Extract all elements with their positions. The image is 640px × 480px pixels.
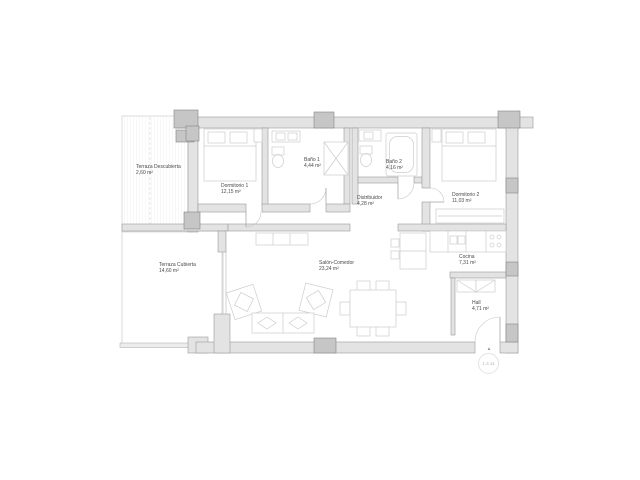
door-arc-entrance [475, 317, 500, 342]
room-label-dormitorio-2: Dormitorio 2 11,03 m² [452, 192, 479, 204]
glass-sliding-door [223, 252, 226, 314]
room-area: 12,15 m² [221, 189, 248, 195]
wall-glass-jamb-top [218, 231, 226, 252]
wall-bano2-bottom-b [414, 177, 422, 183]
entrance-ref-badge: 1.3.11 [478, 353, 499, 374]
toilet-tank [272, 147, 284, 155]
pillar [498, 111, 520, 128]
sink-counter [359, 130, 381, 141]
door-arc-bano2 [398, 183, 414, 199]
wall-dormitorio1-bottom-c [326, 204, 350, 212]
room-label-dormitorio-1: Dormitorio 1 12,15 m² [221, 183, 248, 195]
nightstand [432, 129, 441, 142]
room-area: 7,31 m² [459, 260, 476, 266]
nightstand [254, 129, 262, 142]
wall-bath-divider-right [352, 128, 358, 204]
kitchen-counter [430, 231, 506, 252]
furniture-dormitorio-2 [432, 129, 504, 223]
stool [391, 251, 399, 259]
furniture-dormitorio-1 [204, 129, 262, 181]
wall-dormitorio1-right [262, 128, 268, 206]
wall-hall-top [450, 272, 506, 278]
pillow [446, 132, 463, 143]
wall-dormitorio1-bottom-a [198, 204, 246, 212]
floor-plan: Terraza Descubierta 2,60 m² Dormitorio 1… [0, 0, 640, 480]
terrace-railing [120, 343, 192, 348]
room-area: 4,44 m² [304, 163, 321, 169]
terraza-cubierta-floor [120, 231, 222, 353]
room-area: 4,16 m² [386, 165, 403, 171]
room-area: 2,60 m² [136, 170, 181, 176]
wall-bano2-bottom-a [358, 177, 398, 183]
wall-top [176, 117, 533, 128]
pillow [208, 132, 225, 143]
wall-glass-jamb-bottom [214, 314, 230, 353]
room-label-terraza-descubierta: Terraza Descubierta 2,60 m² [136, 164, 181, 176]
pillow [230, 132, 247, 143]
chair [396, 302, 406, 315]
chair [357, 326, 370, 336]
wall-right [506, 117, 518, 353]
pillar [186, 126, 199, 141]
room-area: 4,28 m² [357, 201, 382, 207]
entrance-arrow-icon: ▲ [478, 346, 500, 351]
toilet-bowl [361, 154, 372, 167]
dining-set [340, 281, 406, 336]
room-label-terraza-cubierta: Terraza Cubierta 14,60 m² [159, 262, 196, 274]
pillar [314, 112, 334, 128]
chair [340, 302, 350, 315]
furniture-hall [457, 280, 495, 292]
room-label-hall: Hall 4,71 m² [472, 300, 489, 312]
chair [376, 281, 389, 291]
room-label-bano-1: Baño 1 4,44 m² [304, 157, 321, 169]
wall-dormitorio2-left-top [422, 128, 430, 188]
armchair [299, 283, 333, 317]
room-label-distribuidor: Distribuidor 4,28 m² [357, 195, 382, 207]
pillar [506, 324, 518, 342]
pillar [314, 338, 336, 353]
pillow [468, 132, 485, 143]
pillar [506, 178, 518, 193]
wall-bottom-right [500, 342, 518, 353]
sofa [252, 313, 314, 333]
stool [391, 239, 399, 247]
room-area: 4,71 m² [472, 306, 489, 312]
entrance-marker: ▲ 1.3.11 [478, 346, 500, 374]
toilet-tank [360, 146, 372, 154]
door-arc-dormitorio2 [430, 188, 444, 202]
room-label-cocina: Cocina 7,31 m² [459, 254, 476, 266]
wall-dormitorio2-bottom [398, 224, 506, 231]
room-area: 11,03 m² [452, 198, 479, 204]
door-arc-bano1 [310, 188, 326, 204]
wall-terraza-cubierta-top [122, 224, 228, 231]
wall-hall-left [451, 278, 455, 335]
room-area: 23,24 m² [319, 266, 354, 272]
floor-plan-drawing [0, 0, 640, 480]
furniture-salon-comedor [226, 233, 406, 336]
pillar [184, 212, 200, 229]
room-area: 14,60 m² [159, 268, 196, 274]
pillar [174, 110, 198, 128]
wall-dormitorio1-bottom-b [262, 204, 310, 212]
sideboard [256, 233, 308, 245]
pillar [506, 262, 518, 276]
toilet-bowl [273, 155, 284, 168]
chair [357, 281, 370, 291]
dining-table [350, 290, 396, 327]
room-label-salon-comedor: Salón-Comedor 23,24 m² [319, 260, 354, 272]
chair [376, 326, 389, 336]
room-label-bano-2: Baño 2 4,16 m² [386, 159, 403, 171]
furniture-cocina [391, 231, 506, 269]
entrance-ref-label: 1.3.11 [482, 361, 494, 366]
